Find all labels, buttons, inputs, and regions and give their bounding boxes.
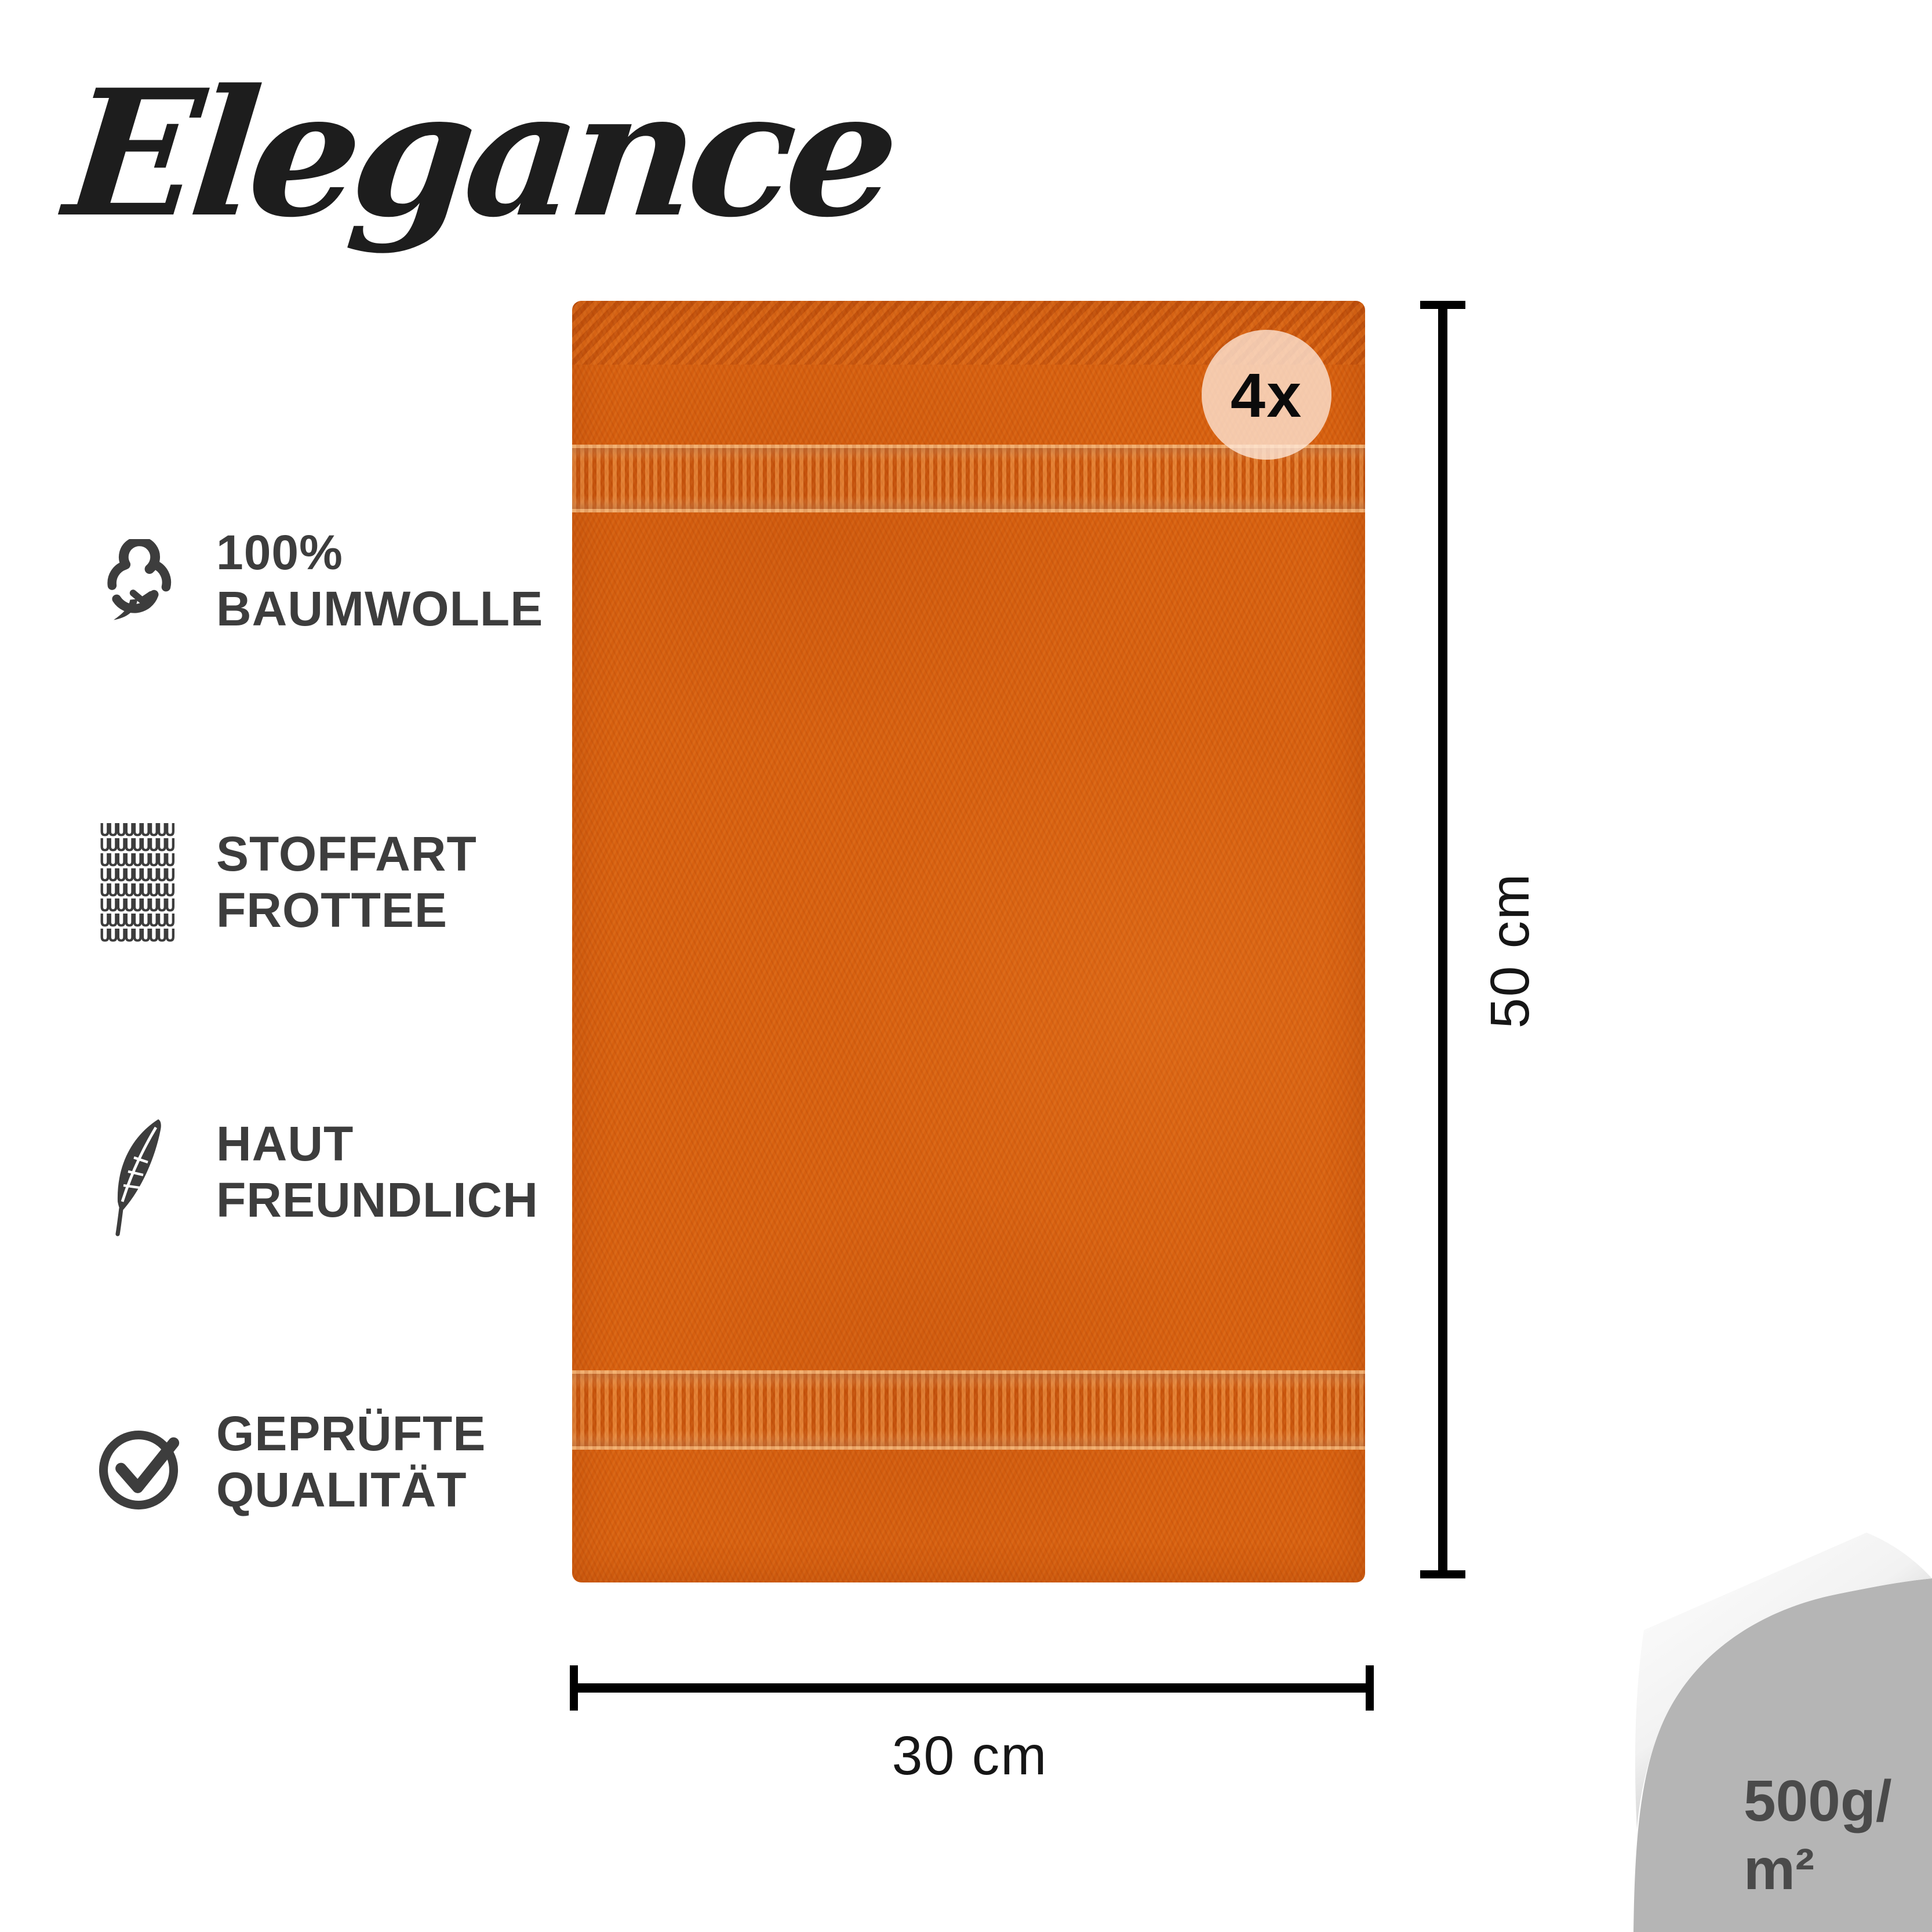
brand-logo: Elegance <box>57 51 900 256</box>
feature-skin-line1: HAUT <box>216 1116 539 1172</box>
feature-cotton-label: 100% BAUMWOLLE <box>216 525 543 637</box>
height-dimension-line <box>1438 301 1447 1578</box>
weight-line2: m² <box>1744 1835 1892 1904</box>
height-dimension-cap-top <box>1420 301 1465 309</box>
feature-cotton-line2: BAUMWOLLE <box>216 581 543 637</box>
feather-icon <box>107 1116 177 1238</box>
feature-fabric-label: STOFFART FROTTEE <box>216 826 477 938</box>
width-dimension-line <box>574 1683 1370 1693</box>
width-dimension-cap-right <box>1366 1665 1374 1711</box>
check-circle-icon <box>94 1419 190 1515</box>
fabric-texture-icon: UUUUUUUUU UUUUUUUUU UUUUUUUUU UUUUUUUUU … <box>100 823 190 947</box>
weight-line1: 500g/ <box>1744 1767 1892 1835</box>
feature-quality-line1: GEPRÜFTE <box>216 1406 486 1462</box>
quantity-badge: 4x <box>1202 330 1331 460</box>
feature-cotton-line1: 100% <box>216 525 543 581</box>
towel-woven-band-bottom <box>572 1370 1365 1450</box>
feature-skin-line2: FREUNDLICH <box>216 1172 539 1228</box>
feature-fabric-line1: STOFFART <box>216 826 477 882</box>
width-dimension-cap-left <box>570 1665 578 1711</box>
feature-quality-line2: QUALITÄT <box>216 1462 486 1518</box>
feature-quality-label: GEPRÜFTE QUALITÄT <box>216 1406 486 1518</box>
height-dimension-cap-bottom <box>1420 1570 1465 1578</box>
towel-image: 4x <box>572 301 1365 1582</box>
feature-fabric-line2: FROTTEE <box>216 882 477 938</box>
width-label: 30 cm <box>680 1724 1260 1788</box>
feature-skin-label: HAUT FREUNDLICH <box>216 1116 539 1228</box>
weight-label: 500g/ m² <box>1744 1767 1892 1904</box>
height-label: 50 cm <box>1478 864 1542 1038</box>
cotton-icon <box>96 539 185 629</box>
